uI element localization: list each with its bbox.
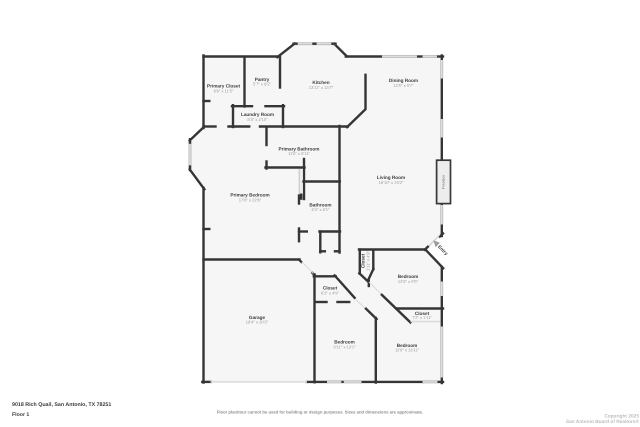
svg-text:16'10" x 23'2": 16'10" x 23'2" [379,180,404,185]
svg-text:13'11" x 13'7": 13'11" x 13'7" [309,85,334,90]
svg-text:8'3" x 2'10": 8'3" x 2'10" [247,117,268,122]
svg-text:Floor 1: Floor 1 [12,412,29,418]
svg-text:9'11" x 13'1": 9'11" x 13'1" [333,344,356,349]
svg-text:Copyright 2025: Copyright 2025 [604,413,639,419]
svg-text:7'2" x 1'11": 7'2" x 1'11" [412,315,432,320]
svg-text:Floor plan/tour cannot be used: Floor plan/tour cannot be used for build… [217,410,423,415]
svg-text:Entry: Entry [437,244,449,256]
svg-text:11'8" x 8'11": 11'8" x 8'11" [288,151,310,156]
svg-text:9018 Rich Quail, San Antonio,: 9018 Rich Quail, San Antonio, TX 78251 [12,402,111,408]
svg-text:San Antonio Board of Realtors®: San Antonio Board of Realtors® [566,419,640,425]
svg-text:5'7" x 8'2": 5'7" x 8'2" [253,82,271,87]
svg-text:6'6" x 11'5": 6'6" x 11'5" [214,89,234,94]
svg-text:17'6" x 22'6": 17'6" x 22'6" [239,198,262,203]
svg-text:Fireplace: Fireplace [442,175,446,189]
svg-text:12'5" x 9'7": 12'5" x 9'7" [393,83,414,88]
svg-text:12'8" x 9'5": 12'8" x 9'5" [398,279,419,284]
svg-text:6'2" x 4'9": 6'2" x 4'9" [321,291,339,296]
svg-text:18'4" x 20'2": 18'4" x 20'2" [246,320,269,325]
svg-text:11'9" x 13'11": 11'9" x 13'11" [395,348,420,353]
svg-text:1'11" x 4'9": 1'11" x 4'9" [365,251,370,271]
svg-text:6'4" x 8'1": 6'4" x 8'1" [312,207,330,212]
